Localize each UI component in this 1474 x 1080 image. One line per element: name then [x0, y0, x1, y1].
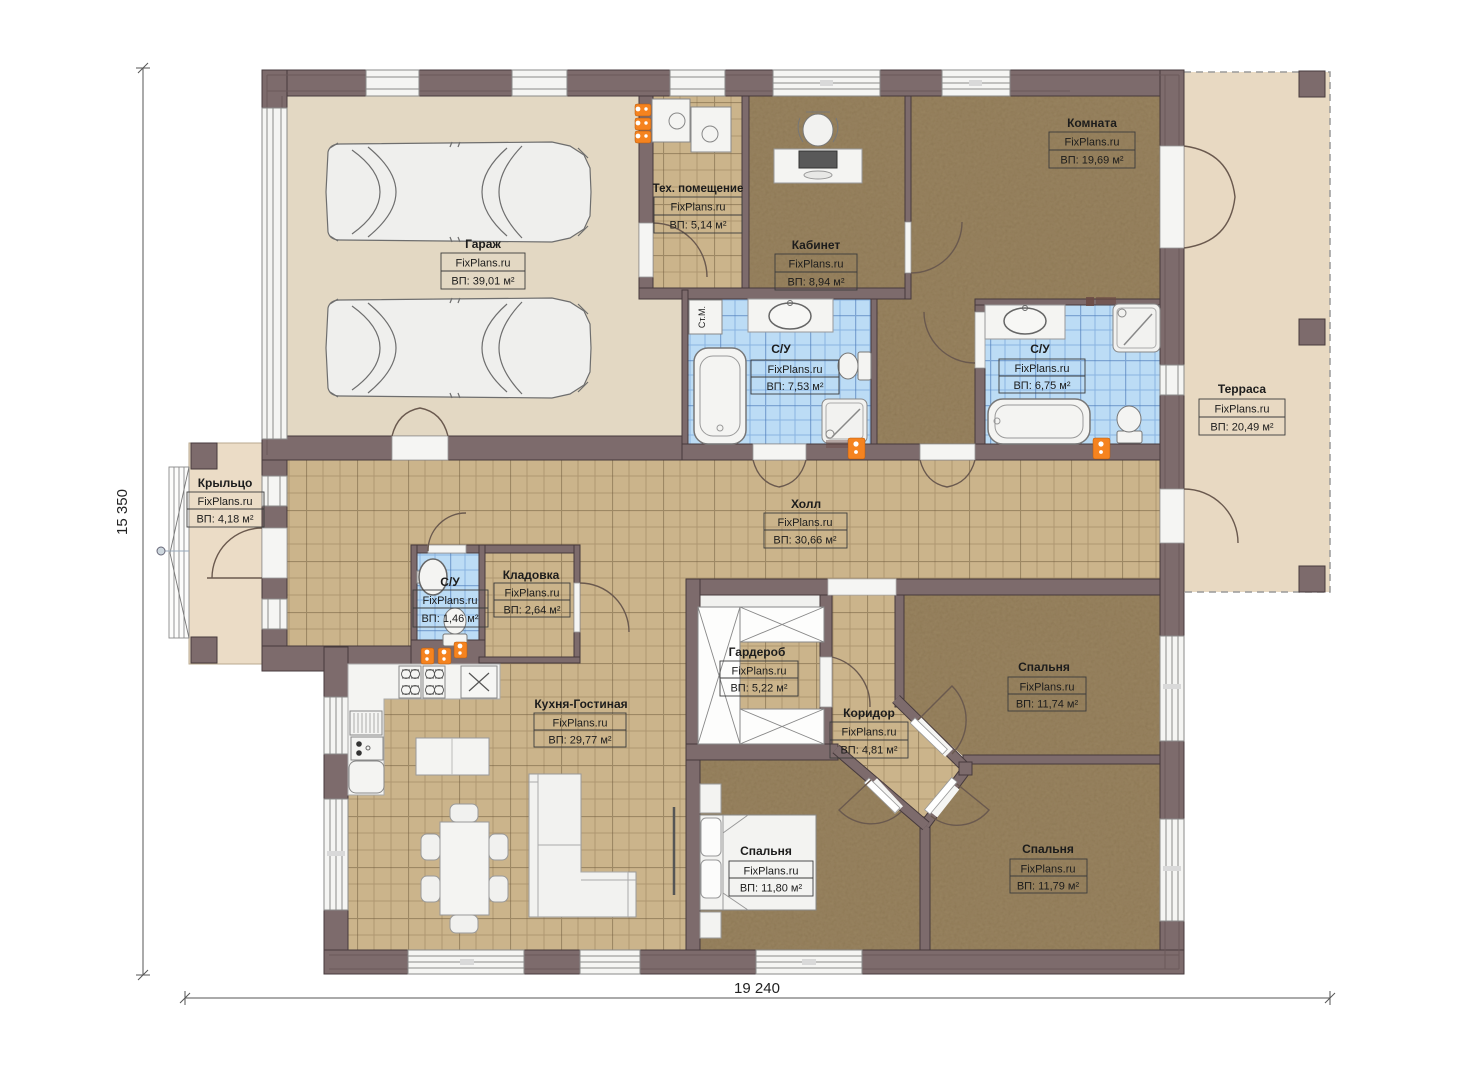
svg-text:ВП: 6,75 м²: ВП: 6,75 м² — [1013, 380, 1070, 392]
svg-text:ВП: 7,53 м²: ВП: 7,53 м² — [766, 381, 823, 393]
svg-text:Ст.М.: Ст.М. — [697, 306, 707, 328]
svg-text:19 240: 19 240 — [734, 980, 780, 997]
svg-text:FixPlans.ru: FixPlans.ru — [1214, 404, 1269, 416]
svg-text:ВП: 19,69 м²: ВП: 19,69 м² — [1060, 155, 1124, 167]
svg-text:С/У: С/У — [771, 342, 791, 356]
svg-text:ВП: 11,74 м²: ВП: 11,74 м² — [1016, 699, 1079, 711]
svg-text:С/У: С/У — [440, 575, 460, 589]
svg-text:Спальня: Спальня — [740, 844, 792, 858]
svg-text:Крыльцо: Крыльцо — [198, 476, 253, 490]
svg-text:ВП: 5,22 м²: ВП: 5,22 м² — [730, 683, 787, 695]
svg-text:FixPlans.ru: FixPlans.ru — [1019, 682, 1074, 694]
svg-text:ВП: 39,01 м²: ВП: 39,01 м² — [451, 276, 515, 288]
svg-text:FixPlans.ru: FixPlans.ru — [504, 588, 559, 600]
svg-text:Тех. помещение: Тех. помещение — [653, 183, 744, 195]
svg-text:Коридор: Коридор — [843, 706, 895, 720]
svg-text:ВП: 29,77 м²: ВП: 29,77 м² — [548, 735, 612, 747]
svg-text:Гараж: Гараж — [465, 237, 501, 251]
svg-text:FixPlans.ru: FixPlans.ru — [670, 202, 725, 214]
svg-text:Спальня: Спальня — [1022, 842, 1074, 856]
svg-text:Холл: Холл — [791, 497, 821, 511]
svg-text:ВП: 5,14 м²: ВП: 5,14 м² — [669, 220, 726, 232]
svg-text:ВП: 8,94 м²: ВП: 8,94 м² — [787, 277, 844, 289]
svg-text:FixPlans.ru: FixPlans.ru — [1020, 864, 1075, 876]
svg-text:Гардероб: Гардероб — [729, 645, 786, 659]
svg-text:FixPlans.ru: FixPlans.ru — [552, 718, 607, 730]
svg-text:ВП: 2,64 м²: ВП: 2,64 м² — [503, 605, 560, 617]
svg-text:FixPlans.ru: FixPlans.ru — [1064, 137, 1119, 149]
svg-text:15 350: 15 350 — [114, 489, 131, 535]
svg-text:FixPlans.ru: FixPlans.ru — [767, 364, 822, 376]
svg-text:FixPlans.ru: FixPlans.ru — [788, 259, 843, 271]
svg-text:С/У: С/У — [1030, 342, 1050, 356]
svg-text:Кухня-Гостиная: Кухня-Гостиная — [534, 697, 627, 711]
svg-text:FixPlans.ru: FixPlans.ru — [422, 595, 477, 607]
svg-text:FixPlans.ru: FixPlans.ru — [197, 496, 252, 508]
svg-text:ВП: 11,79 м²: ВП: 11,79 м² — [1017, 881, 1080, 893]
svg-text:Кабинет: Кабинет — [792, 238, 841, 252]
svg-text:FixPlans.ru: FixPlans.ru — [1014, 363, 1069, 375]
svg-text:Терраса: Терраса — [1218, 382, 1267, 396]
svg-text:ВП: 20,49 м²: ВП: 20,49 м² — [1210, 422, 1274, 434]
svg-text:FixPlans.ru: FixPlans.ru — [841, 727, 896, 739]
svg-text:ВП: 1,46 м²: ВП: 1,46 м² — [421, 613, 478, 625]
svg-text:FixPlans.ru: FixPlans.ru — [777, 517, 832, 529]
svg-text:ВП: 4,81 м²: ВП: 4,81 м² — [840, 745, 897, 757]
svg-text:FixPlans.ru: FixPlans.ru — [455, 258, 510, 270]
svg-text:Кладовка: Кладовка — [503, 568, 560, 582]
svg-text:ВП: 30,66 м²: ВП: 30,66 м² — [773, 535, 837, 547]
svg-text:Комната: Комната — [1067, 116, 1117, 130]
svg-text:FixPlans.ru: FixPlans.ru — [731, 666, 786, 678]
svg-text:ВП: 11,80 м²: ВП: 11,80 м² — [740, 883, 803, 895]
svg-text:ВП: 4,18 м²: ВП: 4,18 м² — [196, 514, 253, 526]
svg-text:FixPlans.ru: FixPlans.ru — [743, 866, 798, 878]
svg-text:Спальня: Спальня — [1018, 660, 1070, 674]
